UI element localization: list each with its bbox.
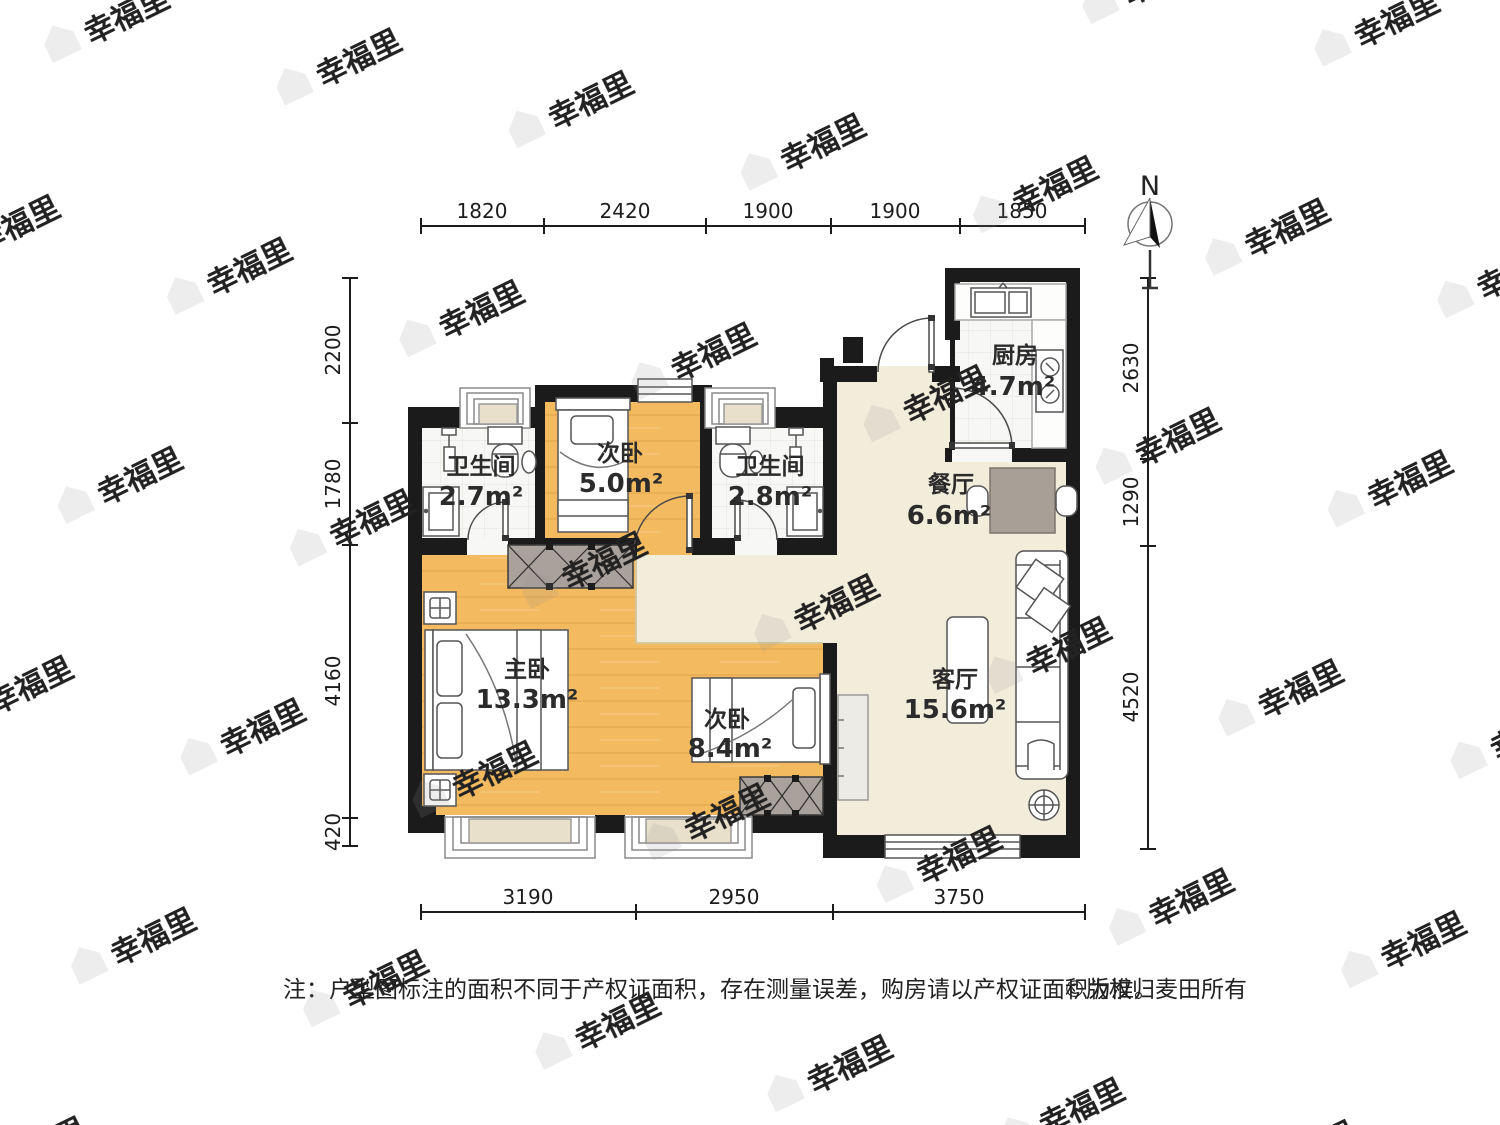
master-wardrobe-icon <box>508 543 633 590</box>
compass-needle-icon <box>1150 198 1160 248</box>
bath1-window <box>460 388 530 428</box>
room-label-kitchen: 厨房 <box>992 342 1038 369</box>
dim-label: 2950 <box>709 885 760 909</box>
entry-threshold <box>877 366 932 382</box>
sofa-icon <box>1016 551 1070 779</box>
room-area-master: 13.3m² <box>476 685 579 715</box>
dim-label: 4160 <box>321 656 345 707</box>
room-area-living: 15.6m² <box>904 695 1007 725</box>
room-label-living: 客厅 <box>932 666 978 693</box>
room-area-dining: 6.6m² <box>907 501 992 531</box>
kitchen-sink-icon <box>955 283 1066 320</box>
room-area-bath2: 2.8m² <box>728 482 813 512</box>
floor-plan-drawing: 幸福里 幸福里 <box>0 0 1500 1125</box>
room-label-bedroom2: 次卧 <box>597 440 643 467</box>
tv-cabinet-icon <box>838 695 868 800</box>
room-label-dining: 餐厅 <box>928 472 974 498</box>
entry-door <box>878 315 935 372</box>
dim-label: 3190 <box>503 885 554 909</box>
dim-label: 2200 <box>321 325 345 376</box>
dim-label: 420 <box>321 813 345 851</box>
room-label-bath1: 卫生间 <box>447 454 516 480</box>
dim-label: 1290 <box>1119 477 1143 528</box>
bedroom3-bay-window <box>625 817 752 858</box>
room-area-bath1: 2.7m² <box>439 482 524 512</box>
compass-staff <box>1142 250 1158 288</box>
kitchen-threshold <box>952 448 1012 462</box>
dim-label: 1820 <box>457 199 508 223</box>
room-label-bedroom3: 次卧 <box>704 706 750 733</box>
bath1-sink-icon <box>522 451 536 473</box>
bedroom3-wardrobe-icon <box>740 775 823 817</box>
disclaimer-note: 注：户型图标注的面积不同于产权证面积，存在测量误差，购房请以产权证面积为准。 <box>283 977 1157 1003</box>
compass-north-label: N <box>1140 171 1160 202</box>
copyright-note: ©版权归麦田所有 <box>1063 977 1247 1003</box>
room-area-bedroom2: 5.0m² <box>579 469 664 499</box>
room-label-master: 主卧 <box>504 657 550 683</box>
room-area-kitchen: 4.7m² <box>971 372 1056 402</box>
dim-label: 1900 <box>870 199 921 223</box>
dim-label: 4520 <box>1119 672 1143 723</box>
bath2-window <box>705 388 775 428</box>
room-area-bedroom3: 8.4m² <box>688 734 773 764</box>
master-bay-window <box>445 817 595 858</box>
room-label-bath2: 卫生间 <box>736 454 805 480</box>
floor-drain-icon <box>1029 790 1059 820</box>
bedroom2-window <box>638 379 692 402</box>
dim-label: 1780 <box>321 459 345 510</box>
bedroom2-threshold <box>637 538 692 555</box>
dining-chair-icon <box>1056 486 1077 516</box>
north-compass: N <box>1124 171 1172 288</box>
dim-label: 1850 <box>997 199 1048 223</box>
dim-label: 3750 <box>934 885 985 909</box>
bath2-threshold <box>735 538 777 555</box>
dim-label: 2630 <box>1119 343 1143 394</box>
floor-plan-page: 幸福里 幸福里 <box>0 0 1500 1125</box>
nightstand-icon <box>424 592 456 624</box>
living-window <box>885 835 1020 858</box>
disclaimer: 注：户型图标注的面积不同于产权证面积，存在测量误差，购房请以产权证面积为准。 ©… <box>283 977 1247 1003</box>
bath1-threshold <box>467 538 508 555</box>
dim-label: 2420 <box>600 199 651 223</box>
dim-label: 1900 <box>743 199 794 223</box>
nightstand-icon <box>424 774 456 806</box>
dining-table-icon <box>990 468 1055 533</box>
